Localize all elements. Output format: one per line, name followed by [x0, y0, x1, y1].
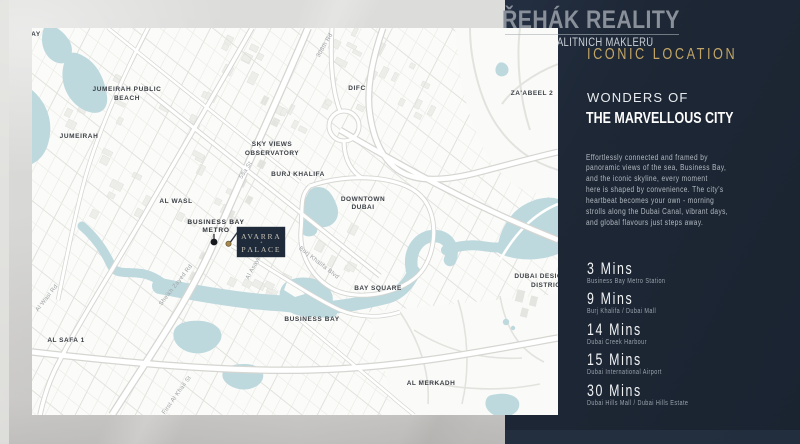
svg-text:OBSERVATORY: OBSERVATORY [245, 150, 299, 157]
svg-text:DISTRICT: DISTRICT [531, 282, 558, 289]
svg-text:PΛLACE: PΛLACE [241, 245, 281, 254]
svg-text:ZA'ABEEL 2: ZA'ABEEL 2 [511, 90, 554, 97]
svg-text:AY: AY [32, 31, 41, 38]
svg-text:JUMEIRAH: JUMEIRAH [60, 133, 99, 140]
svg-text:JUMEIRAH PUBLIC: JUMEIRAH PUBLIC [93, 86, 162, 93]
svg-text:DUBAI: DUBAI [351, 204, 374, 211]
svg-text:BEACH: BEACH [114, 95, 140, 102]
svg-text:DOWNTOWN: DOWNTOWN [341, 196, 385, 203]
svg-text:AL WASL: AL WASL [159, 198, 192, 205]
svg-text:METRO: METRO [202, 227, 229, 234]
svg-text:AL SAFA 1: AL SAFA 1 [47, 337, 84, 344]
svg-text:✦: ✦ [260, 241, 263, 245]
svg-text:DUBAI DESIGN: DUBAI DESIGN [514, 273, 558, 280]
svg-text:BAY SQUARE: BAY SQUARE [354, 285, 402, 292]
svg-text:BUSINESS BAY: BUSINESS BAY [187, 219, 244, 226]
svg-text:SKY VIEWS: SKY VIEWS [252, 141, 293, 148]
svg-text:BUSINESS BAY: BUSINESS BAY [284, 316, 339, 323]
svg-text:BURJ KHALIFA: BURJ KHALIFA [271, 171, 325, 178]
svg-text:AL MERKADH: AL MERKADH [407, 380, 456, 387]
svg-text:DIFC: DIFC [348, 85, 366, 92]
